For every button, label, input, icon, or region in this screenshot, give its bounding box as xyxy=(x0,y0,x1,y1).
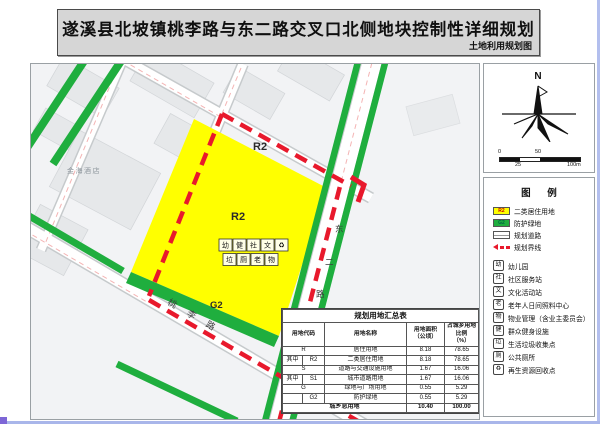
land-use-map-panel: 幼 健 社 文 ♻ 垃 厕 老 物 金海酒店 R2 R2 G2 桃李路 东 二 xyxy=(30,63,480,420)
legend: 图 例 R2 二类居住用地 G2 防护绿地 规划道路 规划界线 幼 幼儿园 社 … xyxy=(483,177,595,417)
property-mgmt-icon: 物 xyxy=(493,312,504,323)
public-toilet-icon: 厕 xyxy=(493,351,504,362)
col-header-name: 用地名称 xyxy=(325,322,407,346)
table-row: 其中 S1 城市道路用地 1.67 16.06 xyxy=(283,375,479,385)
kindergarten-icon: 幼 xyxy=(222,241,229,250)
table-row: R 居住用地 8.18 78.65 xyxy=(283,346,479,356)
road-swatch xyxy=(493,231,510,239)
property-mgmt-icon: 物 xyxy=(268,255,275,264)
plan-sheet: 遂溪县北坡镇桃李路与东二路交叉口北侧地块控制性详细规划 土地利用规划图 xyxy=(0,0,600,424)
scale-0: 0 xyxy=(498,149,501,155)
table-row: G2 防护绿地 0.55 5.29 xyxy=(283,394,479,404)
table-row: 其中 R2 二类居住用地 8.18 78.65 xyxy=(283,356,479,366)
svg-text:二: 二 xyxy=(325,257,334,267)
residential-swatch: R2 xyxy=(493,207,510,215)
legend-item-public-toilet: 厕 公共厕所 xyxy=(484,350,594,363)
waste-collection-icon: 垃 xyxy=(493,338,504,349)
table-row: G 绿地与广场用地 0.55 5.29 xyxy=(283,384,479,394)
compass-box: N 0 50 25 100m xyxy=(483,63,595,173)
legend-item-community-service: 社 社区服务站 xyxy=(484,272,594,285)
scale-25: 25 xyxy=(515,162,521,168)
public-toilet-icon: 厕 xyxy=(240,256,247,264)
legend-title: 图 例 xyxy=(491,185,594,199)
boundary-swatch xyxy=(493,243,510,251)
sheet-subtitle: 土地利用规划图 xyxy=(469,39,532,52)
col-header-code: 用地代码 xyxy=(283,322,325,346)
scale-100: 100m xyxy=(567,162,581,168)
kindergarten-icon: 幼 xyxy=(493,260,504,271)
legend-item-protective-green: G2 防护绿地 xyxy=(484,217,594,229)
legend-item-fitness: 健 群众健身设施 xyxy=(484,324,594,337)
recycle-icon: ♻ xyxy=(278,243,284,250)
col-header-area: 用地面积 （公顷） xyxy=(407,322,445,346)
scale-bar: 0 50 25 100m xyxy=(499,151,579,169)
fitness-icon: 健 xyxy=(236,241,243,250)
legend-item-residential: R2 二类居住用地 xyxy=(484,205,594,217)
legend-item-waste-collection: 垃 生活垃圾收集点 xyxy=(484,337,594,350)
land-use-summary-table: 规划用地汇总表 用地代码 用地名称 用地面积 （公顷） 占城乡用地比例 （%） … xyxy=(281,308,479,414)
culture-station-icon: 文 xyxy=(264,241,271,250)
legend-item-boundary: 规划界线 xyxy=(484,241,594,253)
svg-text:路: 路 xyxy=(316,289,325,299)
culture-station-icon: 文 xyxy=(493,286,504,297)
table-total-row: 城乡总用地 10.40 100.00 xyxy=(283,403,479,413)
r2-label-lower: R2 xyxy=(231,211,245,223)
scale-50: 50 xyxy=(535,149,541,155)
col-header-ratio: 占城乡用地比例 （%） xyxy=(445,322,479,346)
page-title: 遂溪县北坡镇桃李路与东二路交叉口北侧地块控制性详细规划 xyxy=(58,16,539,40)
table-row: S 道路与交通设施用地 1.67 16.06 xyxy=(283,365,479,375)
r2-label-upper: R2 xyxy=(253,141,267,153)
title-block: 遂溪县北坡镇桃李路与东二路交叉口北侧地块控制性详细规划 土地利用规划图 xyxy=(57,9,540,56)
elderly-care-icon: 老 xyxy=(493,299,504,310)
legend-item-elderly-care: 老 老年人日间照料中心 xyxy=(484,298,594,311)
compass-rose-icon xyxy=(502,86,576,142)
waste-collection-icon: 垃 xyxy=(226,255,233,264)
fitness-icon: 健 xyxy=(493,325,504,336)
legend-item-recycling: ♻ 再生资源回收点 xyxy=(484,363,594,376)
page-edge-corner xyxy=(0,417,7,424)
legend-item-culture-station: 文 文化活动站 xyxy=(484,285,594,298)
table-title: 规划用地汇总表 xyxy=(283,310,479,322)
recycle-icon: ♻ xyxy=(493,364,504,375)
north-arrow: N xyxy=(484,64,592,142)
community-service-icon: 社 xyxy=(493,273,504,284)
g2-label: G2 xyxy=(210,300,223,311)
north-label: N xyxy=(534,71,541,82)
legend-item-property-mgmt: 物 物业管理（含业主委员会） xyxy=(484,311,594,324)
elderly-care-icon: 老 xyxy=(254,255,261,264)
hotel-label: 金海酒店 xyxy=(67,166,101,175)
legend-item-planned-road: 规划道路 xyxy=(484,229,594,241)
community-service-icon: 社 xyxy=(250,241,257,250)
legend-item-kindergarten: 幼 幼儿园 xyxy=(484,259,594,272)
green-swatch: G2 xyxy=(493,219,510,227)
svg-text:东: 东 xyxy=(335,224,344,234)
